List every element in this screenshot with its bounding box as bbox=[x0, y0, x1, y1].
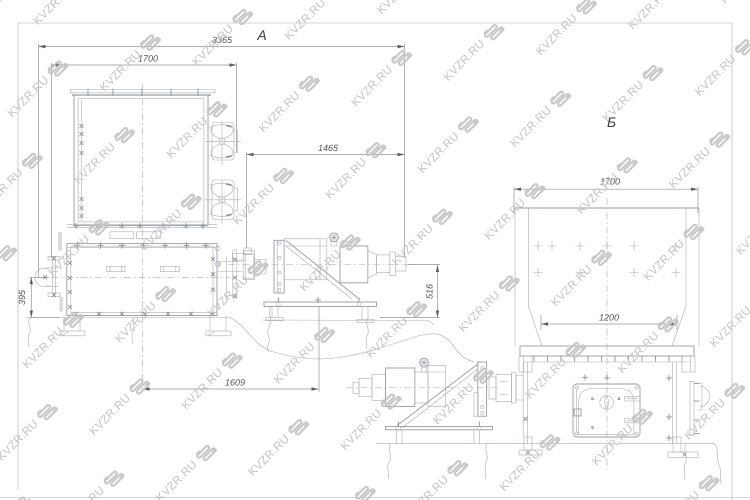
svg-text:KVZR.RU: KVZR.RU bbox=[375, 0, 421, 17]
svg-text:KVZR.RU: KVZR.RU bbox=[339, 407, 385, 453]
svg-text:KVZR.RU: KVZR.RU bbox=[708, 304, 750, 350]
svg-text:KVZR.RU: KVZR.RU bbox=[324, 156, 370, 202]
svg-text:KVZR.RU: KVZR.RU bbox=[416, 130, 462, 176]
svg-text:KVZR.RU: KVZR.RU bbox=[483, 197, 529, 243]
svg-text:516: 516 bbox=[425, 284, 435, 299]
svg-text:KVZR.RU: KVZR.RU bbox=[508, 104, 554, 150]
svg-text:1609: 1609 bbox=[225, 378, 245, 388]
svg-text:KVZR.RU: KVZR.RU bbox=[257, 89, 303, 135]
svg-text:KVZR.RU: KVZR.RU bbox=[21, 325, 67, 371]
svg-text:KVZR.RU: KVZR.RU bbox=[601, 79, 647, 125]
svg-text:KVZR.RU: KVZR.RU bbox=[231, 182, 277, 228]
svg-text:KVZR.RU: KVZR.RU bbox=[719, 0, 750, 6]
svg-text:KVZR.RU: KVZR.RU bbox=[98, 48, 144, 94]
svg-text:KVZR.RU: KVZR.RU bbox=[124, 0, 170, 2]
svg-text:KVZR.RU: KVZR.RU bbox=[734, 212, 750, 258]
svg-text:KVZR.RU: KVZR.RU bbox=[113, 300, 159, 346]
svg-text:KVZR.RU: KVZR.RU bbox=[457, 289, 503, 335]
svg-text:KVZR.RU: KVZR.RU bbox=[682, 397, 728, 443]
svg-text:KVZR.RU: KVZR.RU bbox=[206, 274, 252, 320]
svg-text:KVZR.RU: KVZR.RU bbox=[523, 356, 569, 402]
svg-text:KVZR.RU: KVZR.RU bbox=[154, 459, 200, 500]
svg-text:KVZR.RU: KVZR.RU bbox=[272, 341, 318, 387]
svg-text:KVZR.RU: KVZR.RU bbox=[590, 422, 636, 468]
svg-text:KVZR.RU: KVZR.RU bbox=[616, 330, 662, 376]
svg-text:KVZR.RU: KVZR.RU bbox=[0, 166, 26, 212]
svg-text:KVZR.RU: KVZR.RU bbox=[283, 0, 329, 43]
svg-text:KVZR.RU: KVZR.RU bbox=[190, 23, 236, 69]
svg-text:KVZR.RU: KVZR.RU bbox=[87, 392, 133, 438]
svg-text:KVZR.RU: KVZR.RU bbox=[667, 145, 713, 191]
svg-text:KVZR.RU: KVZR.RU bbox=[575, 171, 621, 217]
svg-text:А: А bbox=[256, 27, 266, 43]
svg-text:KVZR.RU: KVZR.RU bbox=[349, 64, 395, 110]
svg-text:KVZR.RU: KVZR.RU bbox=[390, 222, 436, 268]
svg-text:395: 395 bbox=[17, 289, 27, 305]
svg-text:KVZR.RU: KVZR.RU bbox=[431, 381, 477, 427]
svg-text:KVZR.RU: KVZR.RU bbox=[657, 489, 703, 500]
svg-text:KVZR.RU: KVZR.RU bbox=[72, 141, 118, 187]
svg-text:KVZR.RU: KVZR.RU bbox=[47, 233, 93, 279]
svg-text:KVZR.RU: KVZR.RU bbox=[6, 74, 52, 120]
svg-text:KVZR.RU: KVZR.RU bbox=[534, 12, 580, 58]
svg-text:1465: 1465 bbox=[318, 143, 339, 153]
svg-text:1200: 1200 bbox=[599, 313, 619, 323]
svg-text:KVZR.RU: KVZR.RU bbox=[442, 38, 488, 84]
svg-text:KVZR.RU: KVZR.RU bbox=[0, 418, 41, 464]
svg-text:KVZR.RU: KVZR.RU bbox=[31, 0, 77, 27]
svg-text:KVZR.RU: KVZR.RU bbox=[549, 263, 595, 309]
svg-text:KVZR.RU: KVZR.RU bbox=[642, 238, 688, 284]
svg-text:KVZR.RU: KVZR.RU bbox=[365, 315, 411, 361]
svg-text:KVZR.RU: KVZR.RU bbox=[246, 433, 292, 479]
svg-text:KVZR.RU: KVZR.RU bbox=[405, 474, 451, 500]
svg-text:KVZR.RU: KVZR.RU bbox=[626, 0, 672, 32]
